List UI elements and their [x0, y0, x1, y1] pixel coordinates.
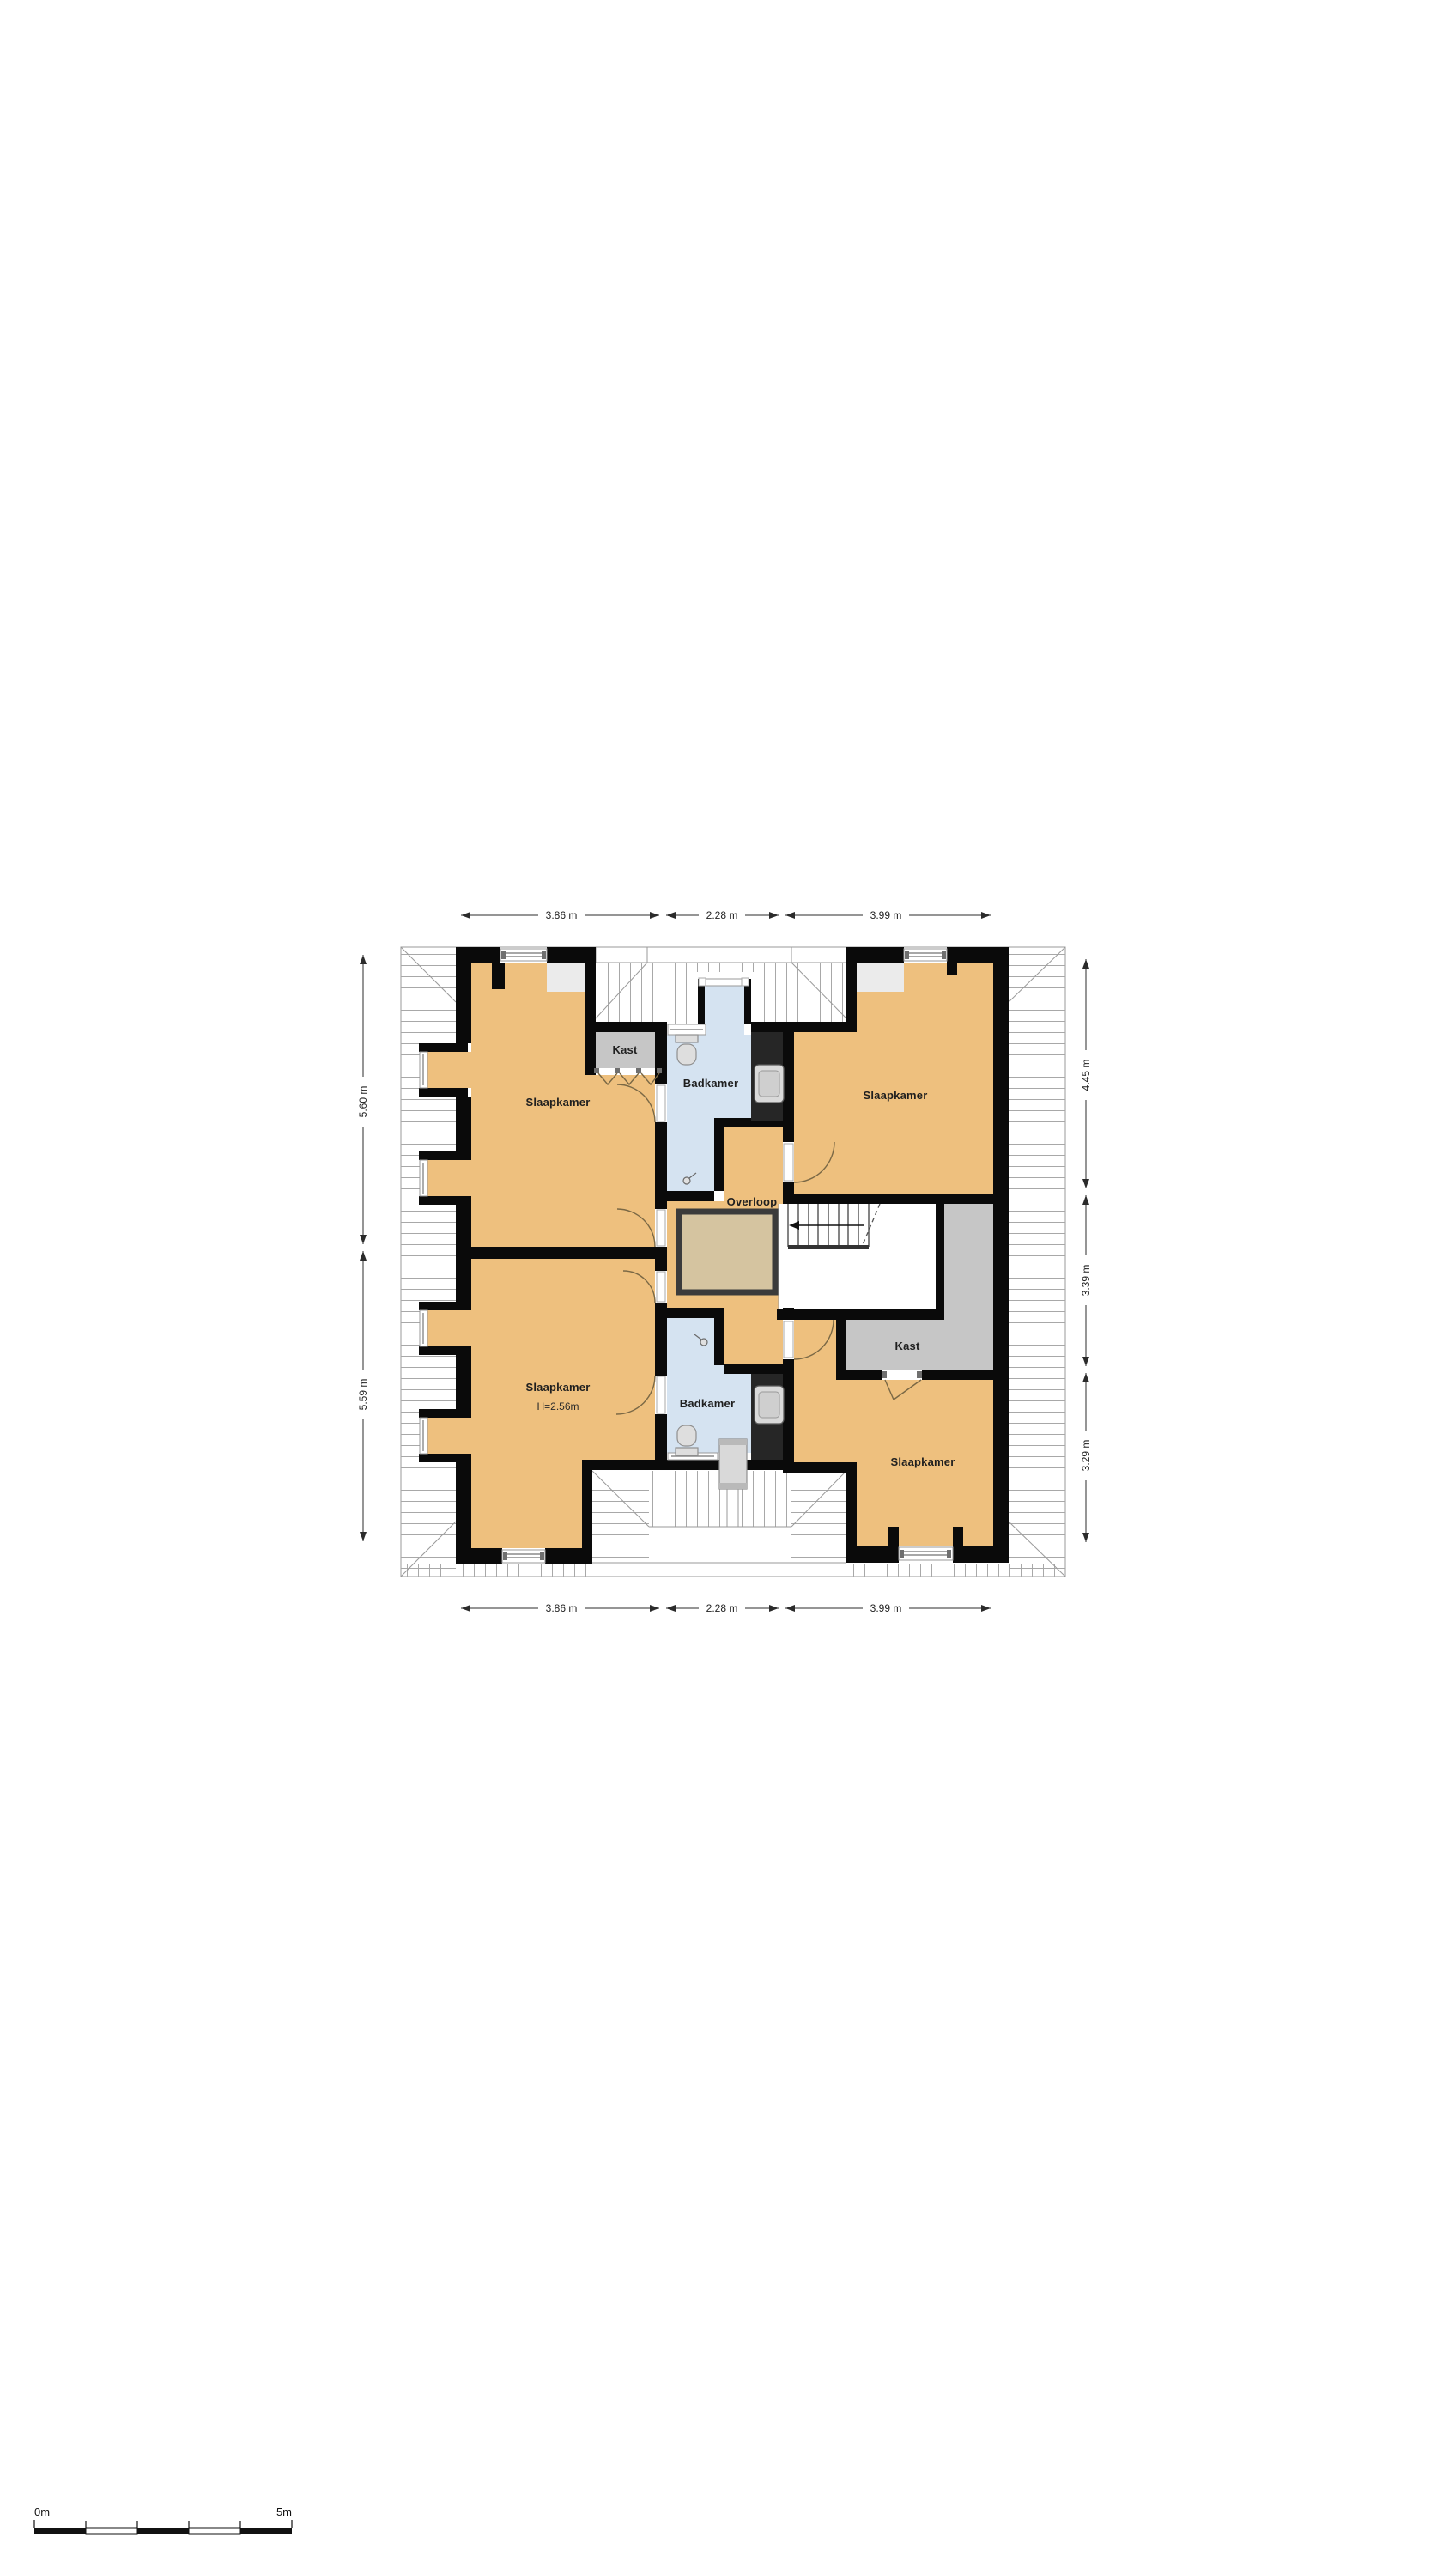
- sink-icon-bottom: [755, 1386, 784, 1424]
- niche-2: [427, 1160, 471, 1196]
- dim-top-1: 3.86 m: [546, 909, 578, 921]
- dim-right-3: 3.29 m: [1080, 1440, 1092, 1472]
- label-kast-right: Kast: [895, 1340, 920, 1352]
- dimension-left: 5.60 m 5.59 m: [357, 955, 369, 1541]
- dim-bottom-2: 2.28 m: [706, 1602, 738, 1614]
- dim-left-1: 5.60 m: [357, 1086, 369, 1118]
- window-bottom-right: [899, 1547, 953, 1560]
- label-slaapkamer-bottom-right: Slaapkamer: [891, 1455, 955, 1468]
- scale-bar-ticks: [34, 2520, 292, 2528]
- window-top-left: [500, 949, 547, 961]
- label-badkamer-bottom: Badkamer: [680, 1397, 735, 1410]
- niche-3: [427, 1310, 471, 1346]
- roof-band-left: [401, 947, 456, 1577]
- scale-bar: 0m 5m: [34, 2506, 292, 2534]
- label-slaapkamer-top-right: Slaapkamer: [864, 1089, 928, 1102]
- floorplan-page: Slaapkamer Slaapkamer Slaapkamer H=2.56m…: [0, 0, 1449, 2576]
- roof-band-bottom-left: [405, 1564, 587, 1577]
- dim-top-3: 3.99 m: [870, 909, 902, 921]
- roof-band-right: [1009, 947, 1065, 1577]
- dim-right-1: 4.45 m: [1080, 1060, 1092, 1091]
- niche-window-3: [420, 1310, 427, 1346]
- label-badkamer-top: Badkamer: [683, 1077, 738, 1090]
- niche-window-4: [420, 1418, 427, 1454]
- window-bottom-left: [502, 1550, 545, 1563]
- window-badkamer-top-sill: [668, 1024, 706, 1035]
- ceiling-slope-top-right: [857, 963, 904, 992]
- niche-4: [427, 1418, 471, 1454]
- dim-bottom-1: 3.86 m: [546, 1602, 578, 1614]
- window-badkamer-top-dormer: [699, 978, 749, 986]
- toilet-icon-top: [676, 1035, 698, 1065]
- toilet-icon-bottom: [676, 1425, 698, 1455]
- stairwell: [779, 1204, 936, 1309]
- label-kast-top: Kast: [613, 1043, 638, 1056]
- dimension-right: 4.45 m 3.39 m 3.29 m: [1080, 959, 1092, 1542]
- label-slaapkamer-top-left: Slaapkamer: [526, 1096, 591, 1109]
- roof-band-bottom-right: [852, 1564, 1061, 1577]
- sink-icon-top: [755, 1065, 784, 1103]
- dimension-top: 3.86 m 2.28 m 3.99 m: [461, 909, 991, 921]
- label-height-note: H=2.56m: [537, 1400, 579, 1413]
- niche-1: [427, 1052, 471, 1088]
- scale-bar-end-label: 5m: [276, 2506, 292, 2518]
- window-top-right: [904, 949, 947, 961]
- dim-right-2: 3.39 m: [1080, 1265, 1092, 1297]
- label-slaapkamer-bottom-left: Slaapkamer: [526, 1381, 591, 1394]
- dim-top-2: 2.28 m: [706, 909, 738, 921]
- floorplan-drawing: Slaapkamer Slaapkamer Slaapkamer H=2.56m…: [0, 0, 1449, 2576]
- dim-left-2: 5.59 m: [357, 1379, 369, 1411]
- dimension-bottom: 3.86 m 2.28 m 3.99 m: [461, 1602, 991, 1614]
- niche-window-2: [420, 1160, 427, 1196]
- dim-bottom-3: 3.99 m: [870, 1602, 902, 1614]
- ceiling-slope-top-left: [547, 963, 585, 992]
- scale-bar-start-label: 0m: [34, 2506, 50, 2518]
- niche-window-1: [420, 1052, 427, 1088]
- label-overloop: Overloop: [727, 1195, 778, 1208]
- void-shaft: [679, 1212, 775, 1292]
